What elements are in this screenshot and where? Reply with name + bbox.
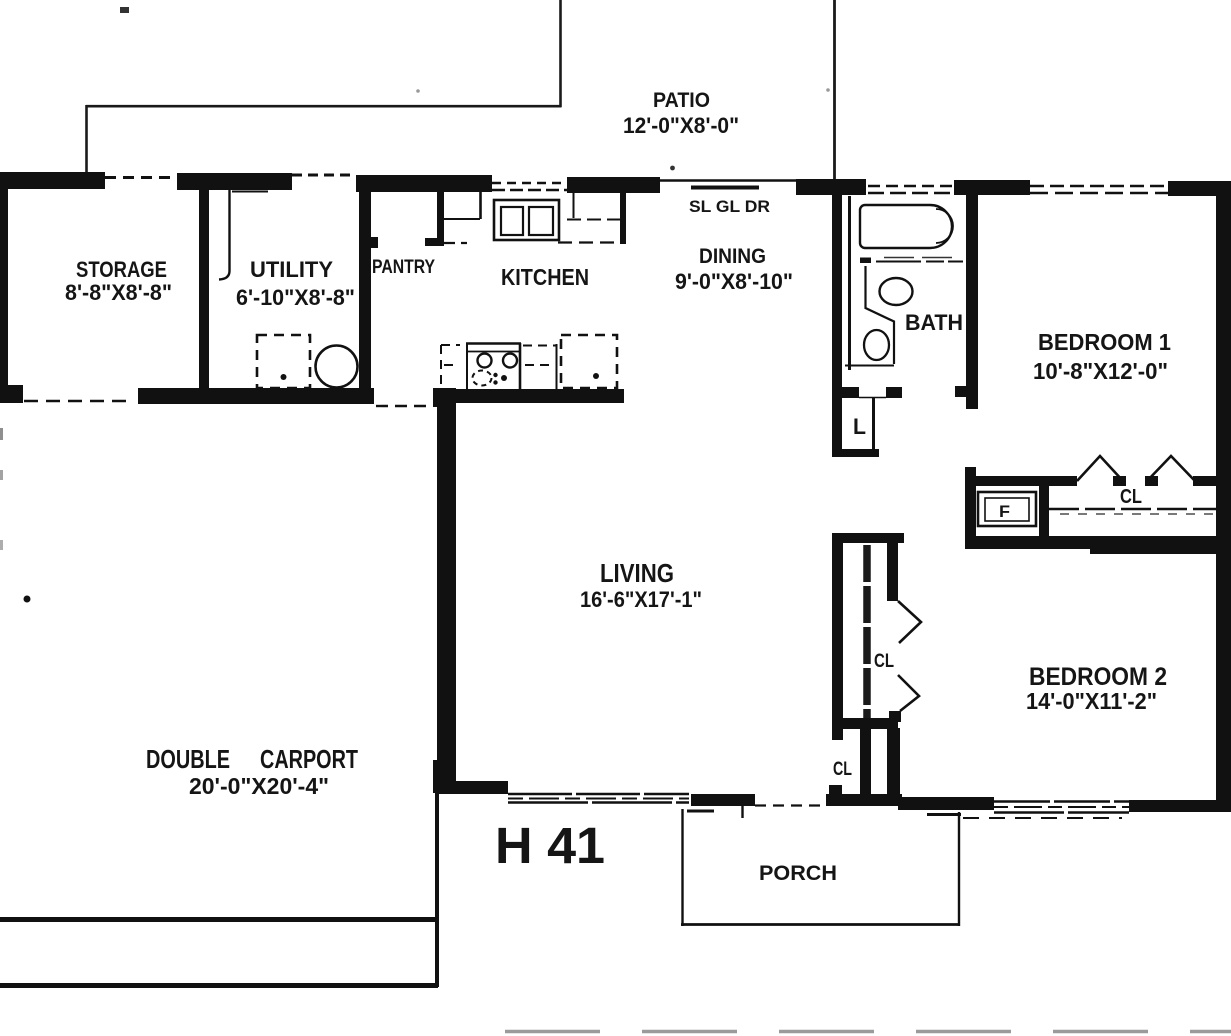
svg-text:PATIO: PATIO [653, 89, 710, 112]
svg-text:8'-8"X8'-8": 8'-8"X8'-8" [65, 280, 172, 305]
svg-text:PORCH: PORCH [759, 862, 837, 885]
svg-text:12'-0"X8'-0": 12'-0"X8'-0" [623, 113, 739, 138]
svg-text:CL: CL [833, 759, 852, 780]
svg-text:STORAGE: STORAGE [76, 257, 167, 282]
svg-text:SL GL DR: SL GL DR [689, 197, 770, 216]
svg-text:PANTRY: PANTRY [372, 257, 435, 278]
svg-text:KITCHEN: KITCHEN [501, 264, 589, 290]
svg-text:BATH: BATH [905, 310, 963, 335]
svg-text:BEDROOM 1: BEDROOM 1 [1038, 329, 1171, 355]
svg-text:9'-0"X8'-10": 9'-0"X8'-10" [675, 269, 793, 294]
svg-text:BEDROOM 2: BEDROOM 2 [1029, 663, 1167, 691]
svg-text:CL: CL [874, 651, 894, 672]
svg-text:CARPORT: CARPORT [260, 744, 358, 774]
svg-text:UTILITY: UTILITY [250, 257, 333, 282]
svg-text:DINING: DINING [699, 245, 766, 268]
svg-text:10'-8"X12'-0": 10'-8"X12'-0" [1033, 358, 1168, 384]
svg-text:F: F [999, 502, 1010, 521]
svg-text:L: L [853, 414, 866, 439]
svg-text:DOUBLE: DOUBLE [146, 744, 230, 774]
svg-text:20'-0"X20'-4": 20'-0"X20'-4" [189, 773, 329, 799]
svg-text:14'-0"X11'-2": 14'-0"X11'-2" [1026, 688, 1157, 714]
svg-text:CL: CL [1120, 486, 1142, 508]
svg-text:LIVING: LIVING [600, 558, 674, 588]
svg-text:H 41: H 41 [495, 817, 605, 874]
svg-text:6'-10"X8'-8": 6'-10"X8'-8" [236, 285, 355, 310]
svg-text:16'-6"X17'-1": 16'-6"X17'-1" [580, 587, 702, 612]
